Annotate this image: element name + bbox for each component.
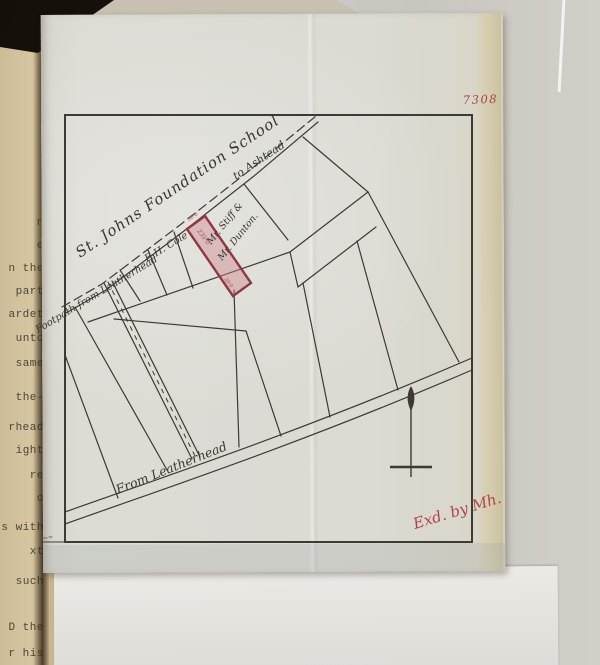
plot-divider <box>303 137 368 192</box>
back-boundary-upper <box>290 192 368 252</box>
footpath-label: Footpath from Leatherhead <box>33 254 160 336</box>
corner-inscription-mark <box>43 537 52 538</box>
plot-boundary <box>234 290 239 447</box>
plan-drawing: St. Johns Foundation School to Ashtead F… <box>0 0 600 665</box>
east-plot-boundary <box>368 192 459 362</box>
back-boundary-lower <box>298 227 376 287</box>
back-boundary-end <box>290 252 298 287</box>
document-number: 7308 <box>463 92 499 107</box>
lane-west-line <box>104 283 192 459</box>
plot-boundary <box>303 283 330 417</box>
road-label: From Leatherhead <box>113 438 229 497</box>
lane-center-dashes <box>108 282 196 458</box>
plot-boundary <box>357 241 398 390</box>
lane-east-line <box>112 281 200 457</box>
plot-boundary <box>246 331 281 436</box>
plot-divider <box>75 307 167 470</box>
plot-divider <box>65 355 118 498</box>
north-arrow-icon <box>390 386 432 477</box>
examined-signature: Exd. by Mh. <box>410 489 503 533</box>
scanned-archive-page: n e n the part ardet unto same the- rhea… <box>0 0 600 665</box>
